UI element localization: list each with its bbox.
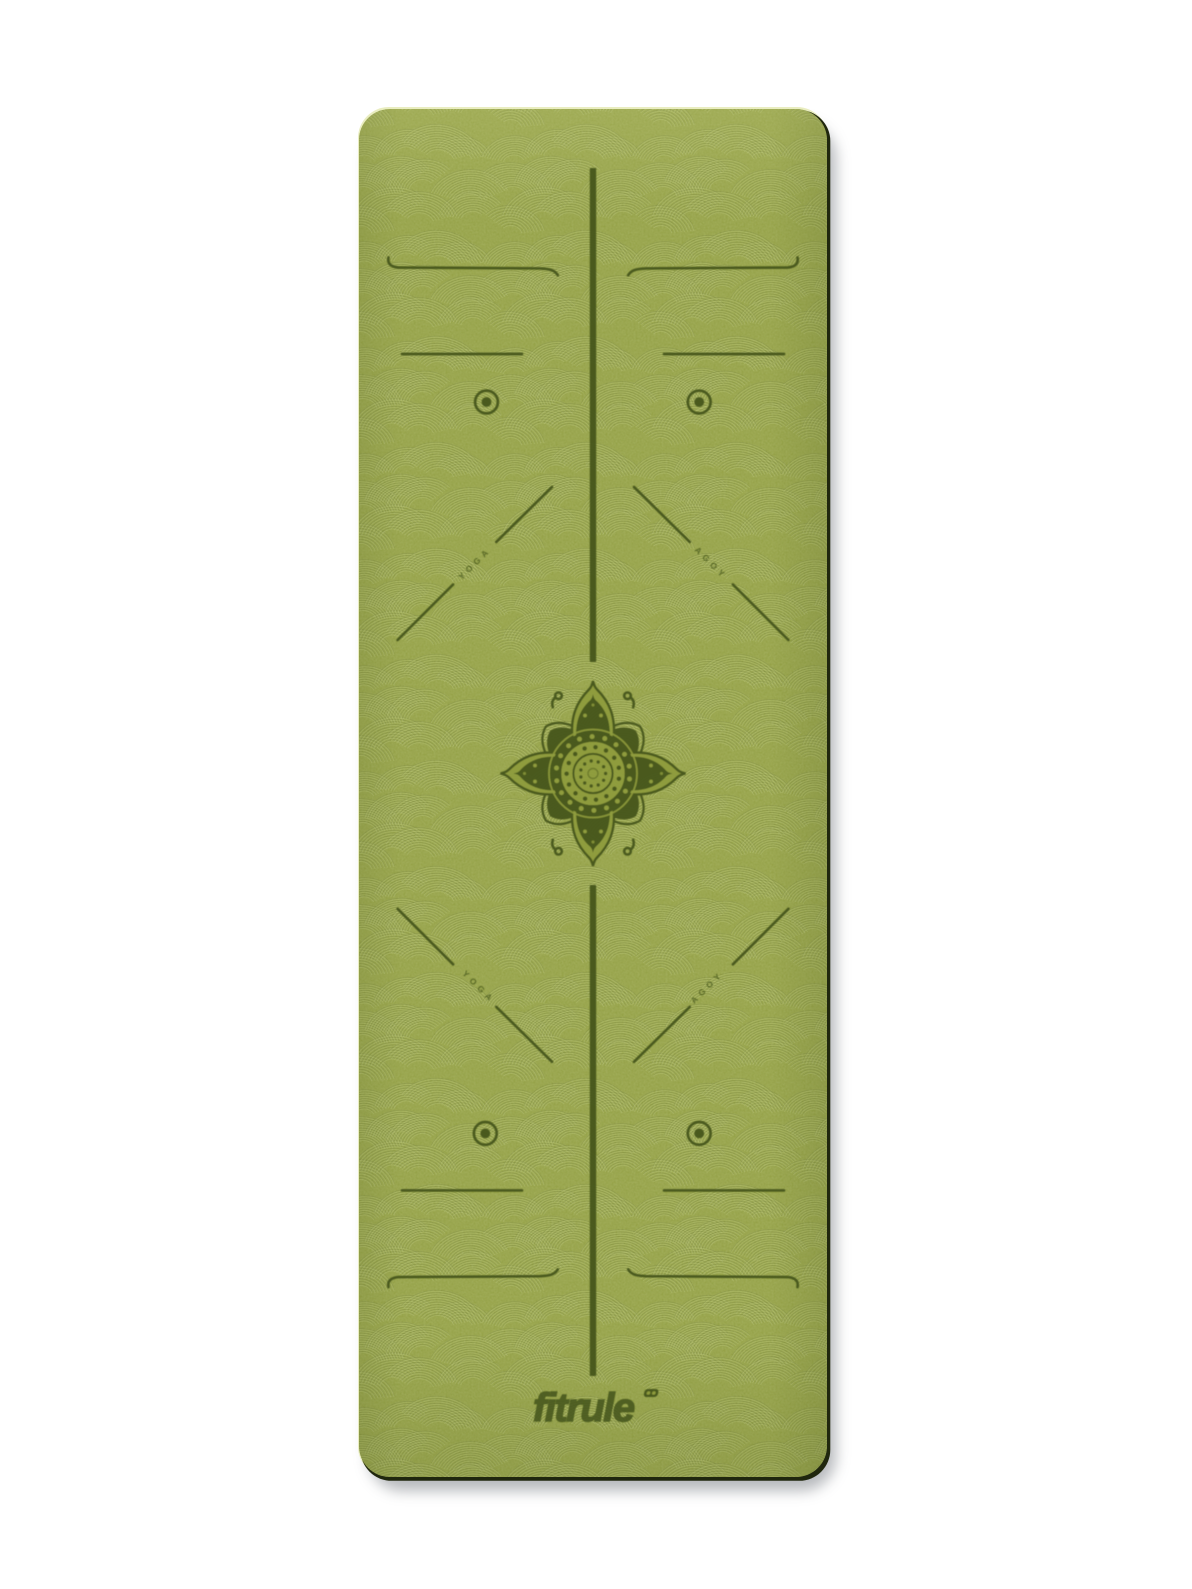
svg-text:fitrule: fitrule bbox=[533, 1386, 635, 1430]
